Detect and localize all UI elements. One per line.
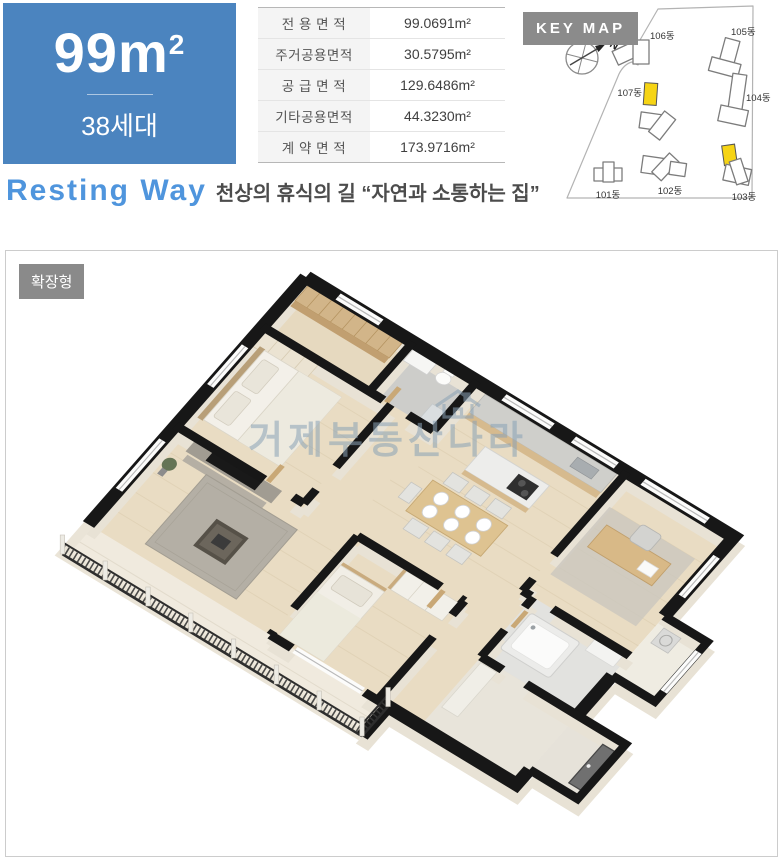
- row-value: 99.0691m²: [370, 8, 505, 38]
- building-label-103: 103동: [732, 192, 757, 203]
- row-label: 주거공용면적: [258, 39, 370, 69]
- row-label: 계 약 면 적: [258, 132, 370, 162]
- table-row: 공 급 면 적 129.6486m²: [258, 70, 505, 101]
- keymap-building-102: [640, 149, 688, 184]
- table-row: 기타공용면적 44.3230m²: [258, 101, 505, 132]
- floorplan-panel: 확장형: [5, 250, 778, 857]
- unit-size: 99m2: [54, 25, 186, 81]
- keymap-title: KEY MAP: [523, 12, 638, 45]
- keymap-building-101: [594, 162, 622, 182]
- keymap-building-107: [638, 108, 677, 142]
- highlight-107: [643, 83, 658, 106]
- tagline-korean: 천상의 휴식의 길 “자연과 소통하는 집”: [216, 183, 540, 205]
- page: 99m2 38세대 전 용 면 적 99.0691m² 주거공용면적 30.57…: [0, 0, 783, 862]
- row-label: 기타공용면적: [258, 101, 370, 131]
- row-label: 전 용 면 적: [258, 8, 370, 38]
- unit-size-sup: 2: [169, 29, 186, 60]
- watermark-text: 거제부동산나라: [248, 420, 528, 462]
- building-label-105: 105동: [731, 27, 756, 38]
- row-value: 173.9716m²: [370, 132, 505, 162]
- table-row: 주거공용면적 30.5795m²: [258, 39, 505, 70]
- building-label-107: 107동: [617, 88, 642, 99]
- table-row: 전 용 면 적 99.0691m²: [258, 8, 505, 39]
- building-label-106: 106동: [650, 31, 675, 42]
- table-row: 계 약 면 적 173.9716m²: [258, 132, 505, 162]
- building-label-104: 104동: [746, 93, 771, 104]
- area-table: 전 용 면 적 99.0691m² 주거공용면적 30.5795m² 공 급 면…: [258, 7, 505, 163]
- plan-type-badge: 확장형: [19, 264, 84, 299]
- divider: [87, 94, 153, 95]
- unit-summary-card: 99m2 38세대: [3, 3, 236, 164]
- keymap-building-104: [718, 73, 749, 126]
- keymap-building-105: [708, 36, 746, 79]
- tagline-english: Resting Way: [6, 174, 207, 207]
- unit-households: 38세대: [81, 106, 158, 143]
- unit-size-value: 99m: [54, 21, 169, 84]
- row-value: 30.5795m²: [370, 39, 505, 69]
- floorplan-drawing: 거제부동산나라: [6, 251, 775, 854]
- row-value: 44.3230m²: [370, 101, 505, 131]
- keymap: KEY MAP N 106동 105동: [518, 2, 780, 214]
- row-value: 129.6486m²: [370, 70, 505, 100]
- tagline: Resting Way천상의 휴식의 길 “자연과 소통하는 집”: [6, 174, 540, 208]
- building-label-102: 102동: [658, 186, 683, 197]
- row-label: 공 급 면 적: [258, 70, 370, 100]
- building-label-101: 101동: [596, 190, 621, 201]
